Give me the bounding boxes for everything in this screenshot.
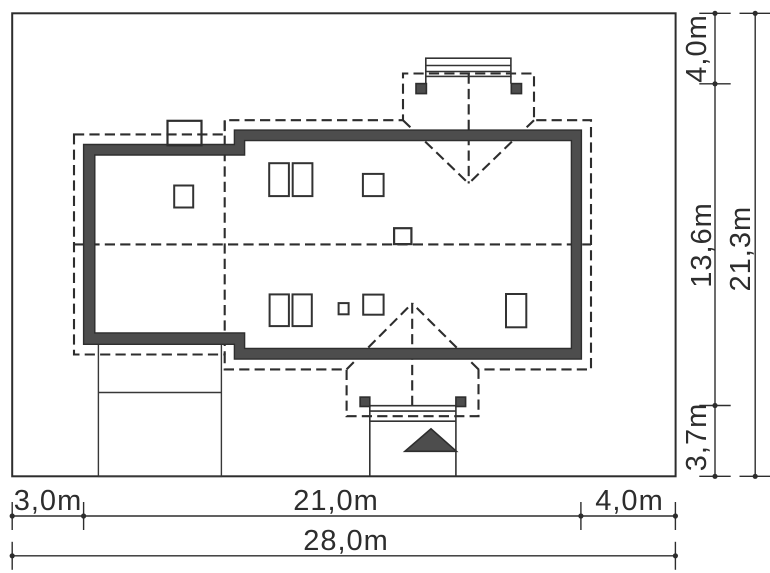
svg-text:21,0m: 21,0m: [293, 485, 379, 517]
svg-text:4,0m: 4,0m: [681, 14, 713, 82]
svg-text:3,7m: 3,7m: [681, 403, 713, 471]
svg-text:13,6m: 13,6m: [686, 202, 718, 288]
svg-text:21,3m: 21,3m: [725, 206, 757, 292]
svg-text:4,0m: 4,0m: [595, 485, 663, 517]
svg-text:3,0m: 3,0m: [14, 485, 82, 517]
svg-text:28,0m: 28,0m: [303, 525, 389, 557]
